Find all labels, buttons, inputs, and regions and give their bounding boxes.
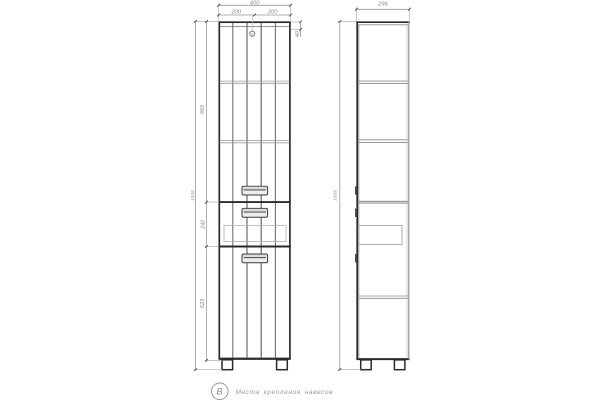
svg-text:400: 400	[250, 0, 260, 6]
svg-text:993: 993	[200, 104, 206, 114]
svg-text:1939: 1939	[333, 190, 339, 201]
svg-text:296: 296	[377, 2, 388, 8]
svg-text:623: 623	[200, 298, 206, 308]
svg-text:1939: 1939	[190, 190, 196, 201]
svg-text:200: 200	[230, 9, 241, 15]
svg-text:200: 200	[267, 9, 278, 15]
svg-text:40: 40	[295, 30, 301, 37]
svg-text:242: 242	[201, 219, 207, 230]
svg-text:Места крепления навесов: Места крепления навесов	[236, 389, 334, 396]
svg-text:В: В	[217, 386, 223, 396]
